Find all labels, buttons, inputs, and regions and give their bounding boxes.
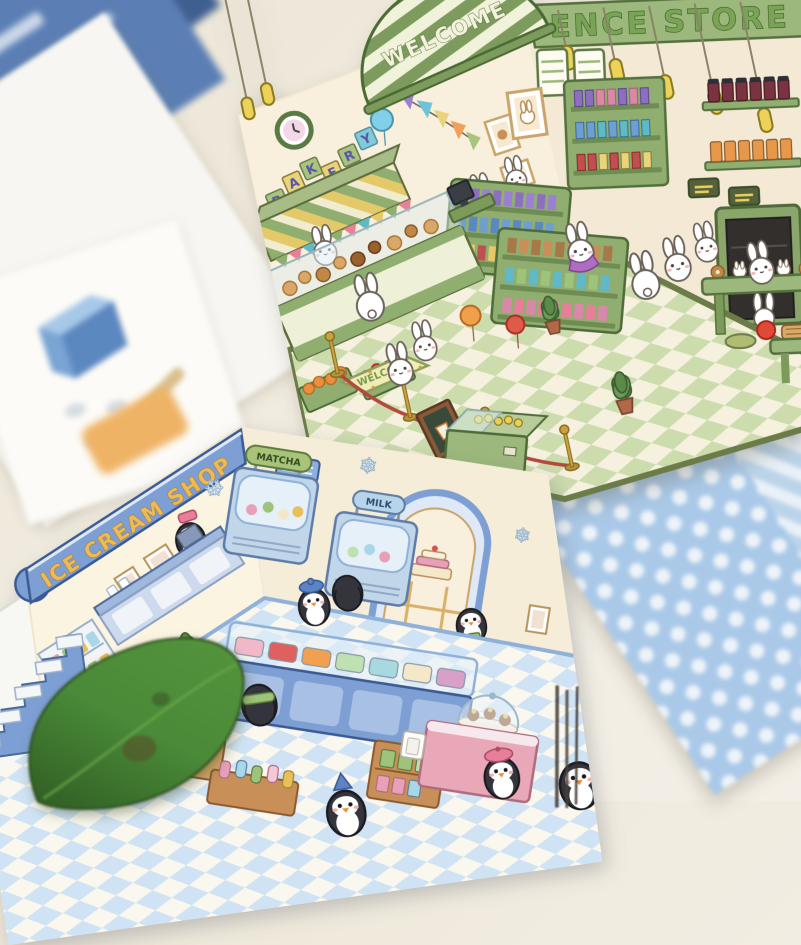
bottle-shelf [564, 77, 668, 189]
leaf [3, 619, 281, 829]
ice-cream-shop-scene: ICE CREAM SHOP ❄ ❄ ❄ [0, 307, 602, 945]
freezer-glass [234, 474, 312, 532]
dried-stem [543, 685, 593, 809]
towel-rack [400, 731, 426, 760]
red-ball-icon [757, 321, 776, 340]
leaf-blade [14, 630, 258, 818]
snowflake-icon: ❄ [357, 453, 379, 481]
stool [725, 334, 756, 349]
bunny-poster [507, 88, 547, 138]
pendant-light-icon [218, 0, 255, 120]
wall-frame [526, 605, 550, 634]
